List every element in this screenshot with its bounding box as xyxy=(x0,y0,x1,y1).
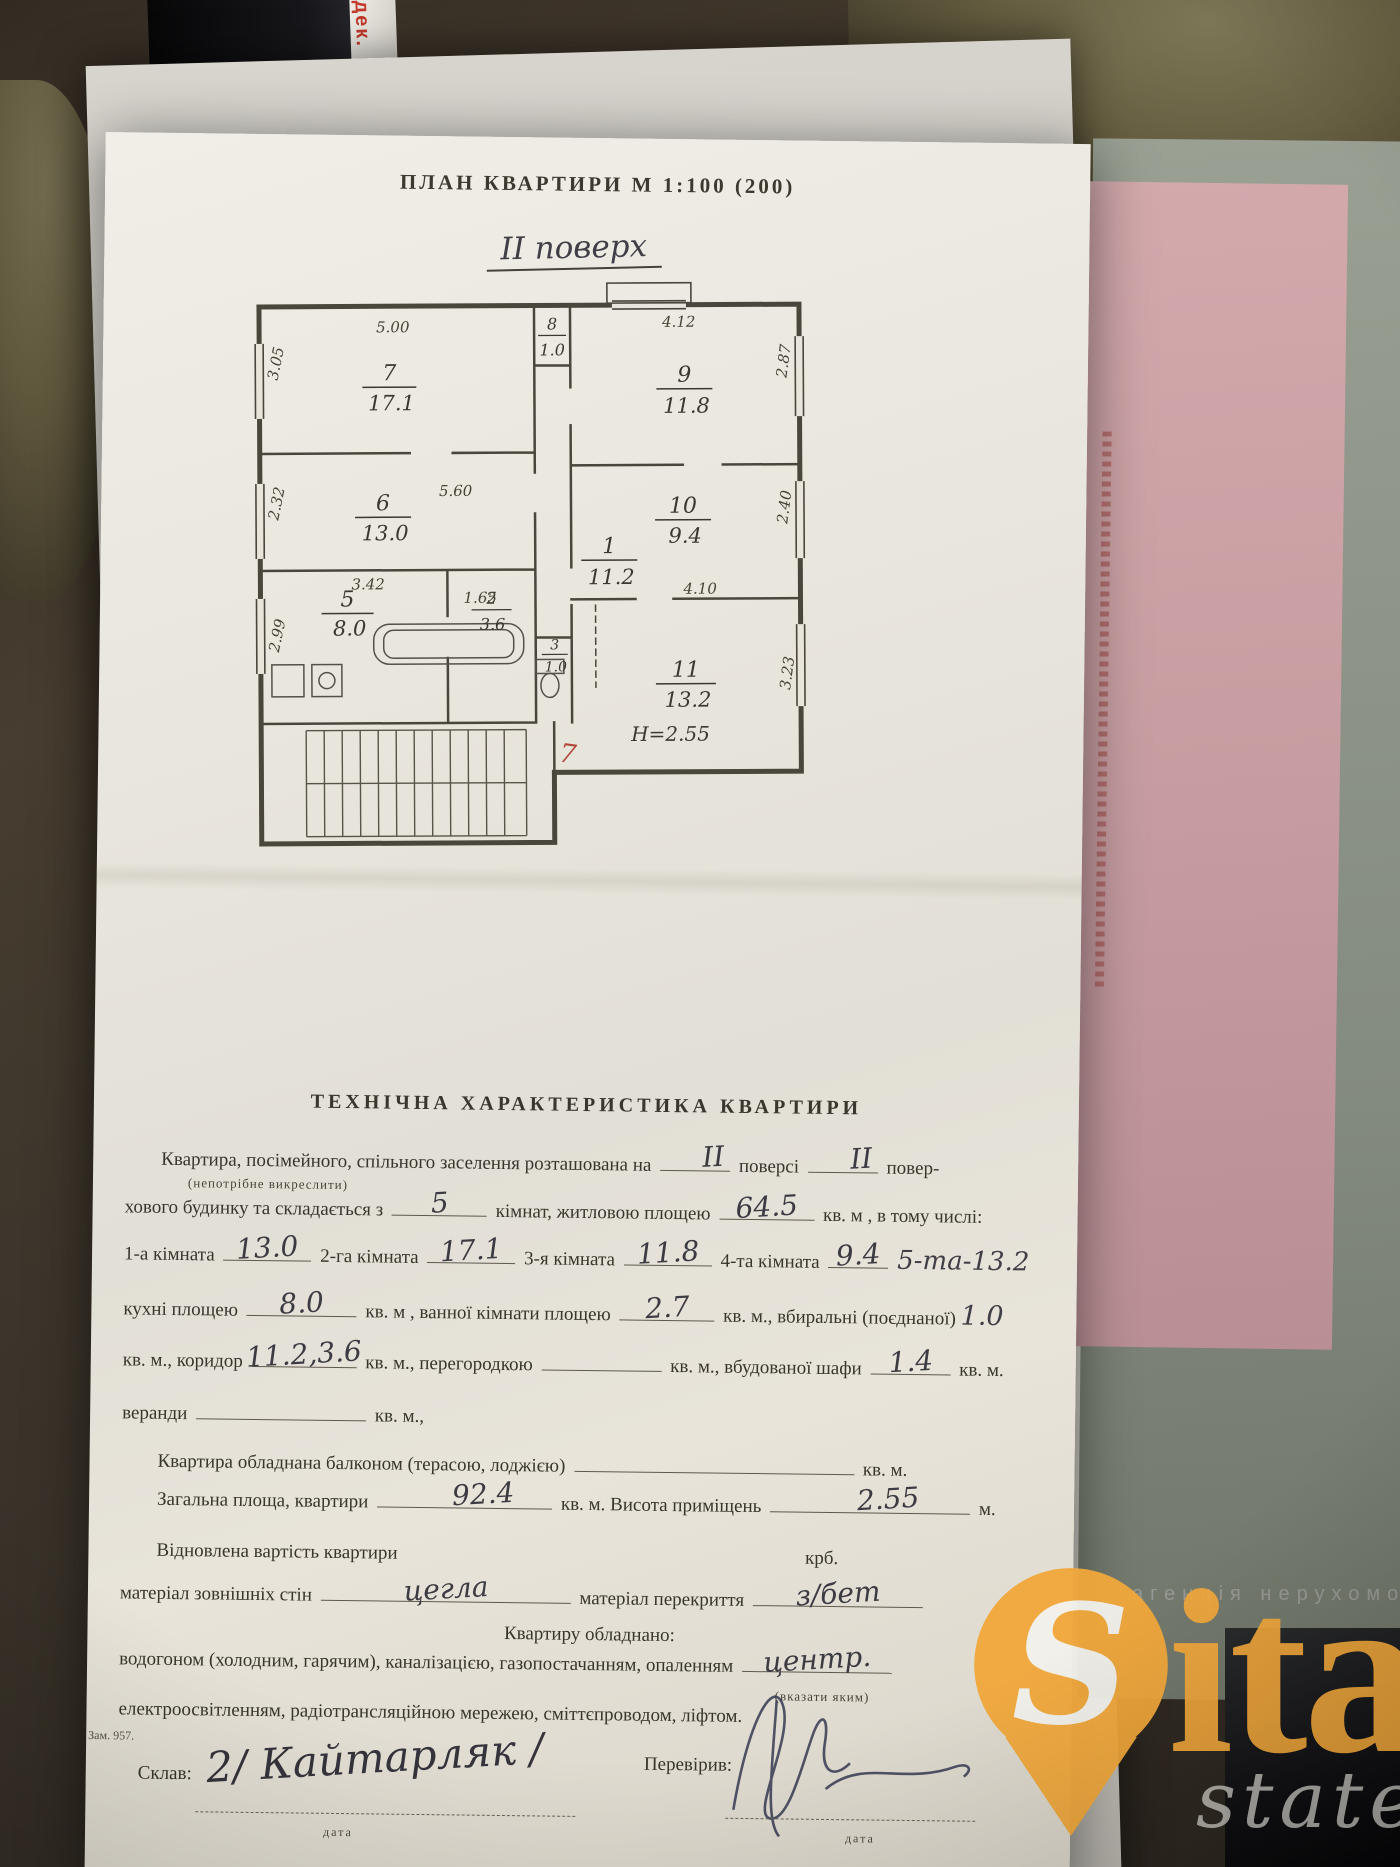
staircase xyxy=(306,730,527,837)
dim-label: 4.10 xyxy=(682,580,717,598)
dim-label: 3.05 xyxy=(264,345,288,381)
fill-blank: 11.2,3.6 xyxy=(252,1347,357,1368)
handwritten-value: 9.4 xyxy=(835,1237,881,1273)
handwritten-value: 64.5 xyxy=(735,1189,799,1226)
printed-text: Квартира, посімейного, спільного заселен… xyxy=(161,1149,651,1176)
handwritten-value: з/бет xyxy=(795,1575,882,1613)
fill-blank: 64.5 xyxy=(719,1200,814,1221)
plan-windows xyxy=(255,282,805,709)
plan-dimensions: 5.00 3.05 4.12 2.87 5.60 2.32 4.10 2.40 … xyxy=(263,312,799,772)
room-area: 17.1 xyxy=(368,391,415,415)
fill-blank: 92.4 xyxy=(377,1487,552,1509)
dim-label: 2.40 xyxy=(773,489,796,526)
watermark-script-text: state xyxy=(1196,1756,1400,1846)
fill-blank: 8.0 xyxy=(247,1296,357,1317)
printed-text: Загальна площа, квартири xyxy=(157,1489,369,1513)
fill-blank: 17.1 xyxy=(427,1243,515,1264)
room-label-5: 5 8.0 xyxy=(321,587,373,640)
fill-blank xyxy=(406,1540,796,1564)
printed-text: матеріал зовнішніх стін xyxy=(120,1582,312,1605)
tech-line-1-note: (непотрібне викреслити) xyxy=(188,1175,348,1193)
fill-blank xyxy=(541,1350,661,1371)
printed-text: веранди xyxy=(122,1402,187,1424)
handwritten-value: 2.7 xyxy=(644,1290,690,1326)
tech-section-heading: ТЕХНІЧНА ХАРАКТЕРИСТИКА КВАРТИРИ xyxy=(94,1088,1079,1123)
fill-blank: 13.0 xyxy=(223,1241,311,1262)
room-number: 6 xyxy=(376,491,390,516)
fill-blank: 2.55 xyxy=(770,1492,970,1514)
fill-blank: цегла xyxy=(321,1581,571,1604)
dim-label: 3.42 xyxy=(351,575,385,593)
tech-line-9: Відновлена вартість квартири крб. xyxy=(120,1536,1060,1573)
room-number: 8 xyxy=(547,314,557,333)
room-label-9: 9 11.8 xyxy=(656,363,712,418)
document-title: ПЛАН КВАРТИРИ М 1:100 (200) xyxy=(105,166,1090,203)
printed-text: крб. xyxy=(805,1548,838,1569)
date-label-right: дата xyxy=(845,1831,875,1846)
floor-plan-drawing: 7 17.1 8 1.0 9 11.8 6 13.0 10 xyxy=(214,266,877,889)
handwritten-value: 2.55 xyxy=(820,1481,920,1520)
form-order-note: Зам. 957. xyxy=(88,1728,134,1744)
plan-walls xyxy=(259,304,802,844)
printed-text: кв. м., перегородкою xyxy=(365,1352,533,1375)
pink-sheet-vertical-text xyxy=(1095,431,1112,991)
fill-blank: 1.4 xyxy=(870,1354,950,1375)
handwritten-value: ІІ xyxy=(813,1142,873,1179)
room-number: 7 xyxy=(382,361,396,386)
dim-label: 1.65 xyxy=(463,589,497,607)
dim-label: 4.12 xyxy=(661,313,696,331)
pink-sheet xyxy=(1074,181,1348,1349)
fill-blank: ІІ xyxy=(808,1153,878,1174)
made-by-signature: 2/ Кайтарляк / xyxy=(205,1724,545,1792)
watermark-pin-logo: S xyxy=(968,1562,1174,1840)
room-label-1: 1 11.2 xyxy=(581,534,637,589)
handwritten-value: 1.4 xyxy=(887,1344,933,1380)
handwritten-value: 11.2,3.6 xyxy=(245,1335,363,1375)
fill-blank: 2.7 xyxy=(619,1300,714,1321)
printed-text: 3-я кімната xyxy=(524,1248,615,1270)
floor-note-handwriting: ІІ поверх xyxy=(486,228,662,272)
dim-label: 3.23 xyxy=(776,655,798,691)
tech-line-6: веранди кв. м., xyxy=(122,1398,1062,1436)
printed-text: повер- xyxy=(886,1158,939,1180)
dim-label: 5.60 xyxy=(439,482,473,500)
tech-line-10: матеріал зовнішніх стін цегла матеріал п… xyxy=(120,1578,1060,1616)
dim-label: 5.00 xyxy=(376,318,410,336)
made-by-underline xyxy=(195,1811,575,1817)
printed-text: кімнат, житловою площею xyxy=(496,1201,711,1225)
printed-text: кв. м , ванної кімнати площею xyxy=(365,1301,611,1325)
handwritten-value: 1.0 xyxy=(960,1301,1003,1333)
fill-blank: 11.8 xyxy=(624,1245,712,1266)
tech-line-7: Квартира обладнана балконом (терасою, ло… xyxy=(121,1446,1061,1484)
dim-label: 2.87 xyxy=(772,343,795,380)
handwritten-value: ІІ xyxy=(665,1140,725,1177)
printed-text: кухні площею xyxy=(123,1298,238,1320)
room-label-6: 6 13.0 xyxy=(355,491,411,545)
printed-text: кв. м. xyxy=(959,1360,1004,1382)
room-area: 1.0 xyxy=(539,340,565,359)
printed-text: кв. м., вбиральні (поєднаної) xyxy=(723,1306,956,1330)
tech-line-2: хового будинку та складається з 5 кімнат… xyxy=(125,1192,1065,1230)
printed-text: 1-а кімната xyxy=(124,1243,215,1265)
printed-text: кв. м. Висота приміщень xyxy=(561,1494,762,1517)
fill-blank xyxy=(196,1399,366,1421)
room-area: 1.0 xyxy=(545,659,567,675)
fill-blank xyxy=(574,1452,854,1475)
room-area: 11.8 xyxy=(663,394,710,418)
room-area: 13.0 xyxy=(362,521,409,545)
dim-label: 2.99 xyxy=(265,617,290,655)
handwritten-value: 92.4 xyxy=(415,1476,515,1515)
printed-text: 4-та кімната xyxy=(720,1251,819,1273)
printed-text: кв. м , в тому числі: xyxy=(823,1205,983,1228)
tech-line-4: кухні площею 8.0 кв. м , ванної кімнати … xyxy=(123,1290,1063,1334)
fill-blank: з/бет xyxy=(753,1586,923,1608)
printed-text: м. xyxy=(979,1499,996,1520)
printed-text: водогоном (холодним, гарячим), каналізац… xyxy=(119,1648,733,1677)
room-area: 13.2 xyxy=(665,688,712,712)
room-number: 11 xyxy=(672,658,700,683)
handwritten-value: цегла xyxy=(402,1570,489,1608)
printed-text: Відновлена вартість квартири xyxy=(156,1540,397,1564)
ceiling-height-note: Н=2.55 xyxy=(630,722,710,746)
date-label-left: дата xyxy=(323,1825,353,1840)
handwritten-value: 17.1 xyxy=(439,1232,503,1269)
printed-text: поверсі xyxy=(739,1156,799,1178)
room-area: 8.0 xyxy=(333,616,367,640)
kitchen-fixtures-icon xyxy=(272,665,342,697)
printed-text: хового будинку та складається з xyxy=(125,1196,384,1220)
printed-text: кв. м., вбудованої шафи xyxy=(670,1356,862,1379)
printed-text: 2-га кімната xyxy=(320,1246,419,1268)
handwritten-value: 5 xyxy=(430,1186,450,1221)
location-pin-icon: S xyxy=(974,1568,1168,1836)
room-number: 9 xyxy=(677,363,691,388)
red-apartment-number: 7 xyxy=(557,739,578,771)
room-label-3: 3 1.0 xyxy=(542,637,568,675)
room-area: 3.6 xyxy=(480,615,506,634)
photo-of-document: дек. ПЛАН КВАРТИРИ М 1:100 (200) ІІ пове… xyxy=(0,0,1400,1867)
checked-by-signature xyxy=(705,1660,987,1843)
room-number: 3 xyxy=(550,637,559,653)
room-label-11: 11 13.2 xyxy=(656,658,716,712)
fill-blank: 5 xyxy=(392,1196,487,1217)
handwritten-value: 11.8 xyxy=(636,1235,700,1272)
book-spine-text: дек. xyxy=(349,0,374,48)
room-label-8: 8 1.0 xyxy=(538,314,566,359)
watermark-brand-text: italo xyxy=(1168,1555,1400,1790)
dim-label: 2.32 xyxy=(264,485,289,522)
tech-line-8: Загальна площа, квартири 92.4 кв. м. Вис… xyxy=(121,1484,1061,1522)
printed-text: кв. м., коридор xyxy=(123,1349,243,1371)
handwritten-value: 13.0 xyxy=(235,1230,299,1267)
tech-line-3: 1-а кімната 13.0 2-га кімната 17.1 3-я к… xyxy=(124,1236,1064,1279)
watermark-letter-s: S xyxy=(1012,1568,1131,1762)
room-area: 11.2 xyxy=(588,565,635,589)
room-label-7: 7 17.1 xyxy=(362,361,416,415)
document-sheet: ПЛАН КВАРТИРИ М 1:100 (200) ІІ поверх xyxy=(84,132,1090,1867)
fill-blank: 9.4 xyxy=(828,1248,888,1269)
printed-text: кв. м. xyxy=(863,1459,908,1481)
room-label-10: 10 9.4 xyxy=(655,494,711,548)
printed-text: матеріал перекриття xyxy=(579,1588,744,1611)
fill-blank: ІІ xyxy=(660,1151,730,1172)
made-by-label: Склав: xyxy=(138,1763,192,1786)
room-number: 10 xyxy=(669,494,697,519)
printed-text: Квартира обладнана балконом (терасою, ло… xyxy=(157,1451,565,1477)
printed-text: кв. м., xyxy=(375,1405,424,1427)
room-number: 1 xyxy=(602,534,616,559)
tech-line-5: кв. м., коридор 11.2,3.6 кв. м., перегор… xyxy=(123,1345,1063,1383)
handwritten-extra: 5-та-13.2 xyxy=(897,1246,1030,1278)
handwritten-value: 8.0 xyxy=(279,1286,325,1322)
room-area: 9.4 xyxy=(668,524,702,548)
